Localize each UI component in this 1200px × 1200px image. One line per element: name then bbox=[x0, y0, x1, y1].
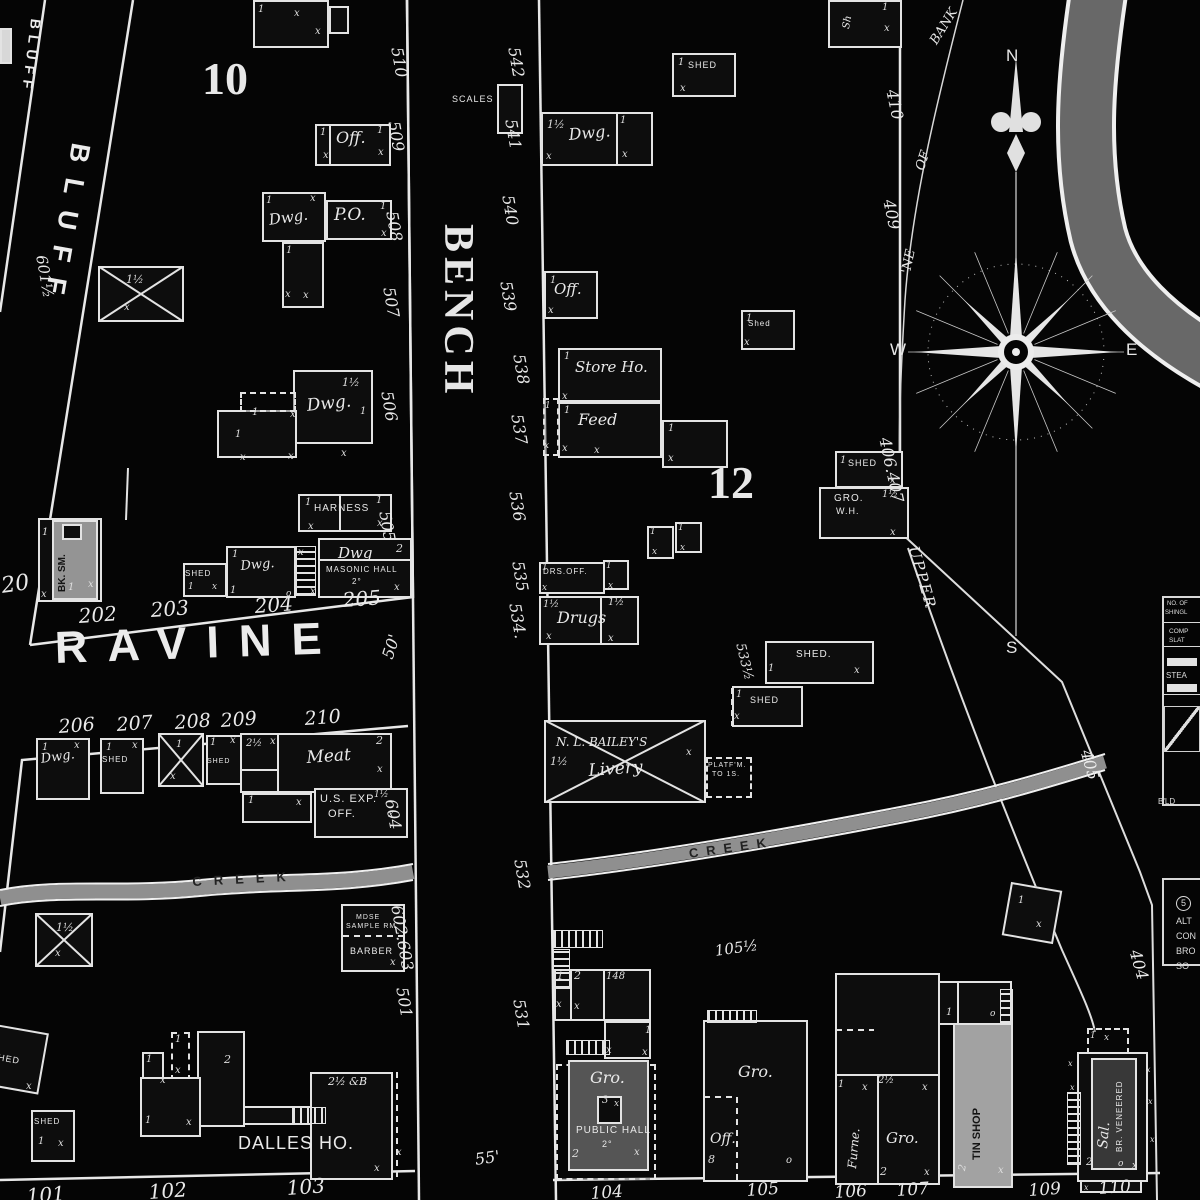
story-mark: 1 bbox=[42, 528, 48, 538]
story-mark: 1½ bbox=[56, 922, 74, 933]
story-mark: 1 bbox=[230, 586, 236, 596]
story-mark: x bbox=[734, 712, 740, 722]
story-mark: 1 bbox=[376, 496, 382, 506]
lot-410: 410 bbox=[883, 88, 905, 121]
story-mark: 2 bbox=[574, 970, 581, 981]
bldg-topcut-a2 bbox=[329, 6, 349, 34]
story-mark: 2 bbox=[572, 1148, 579, 1159]
legend-alt: ALT bbox=[1176, 916, 1192, 926]
lot-409: 409 bbox=[880, 198, 902, 231]
lot-405: 405 bbox=[1078, 748, 1102, 782]
story-mark: 1 bbox=[146, 1055, 152, 1065]
story-mark: x bbox=[170, 772, 176, 782]
story-mark: x bbox=[270, 737, 276, 747]
story-mark: x bbox=[634, 1148, 640, 1158]
bldg-platform-label2: TO 1S. bbox=[712, 771, 740, 778]
bldg-gro2-label: Gro. bbox=[738, 1064, 773, 1080]
story-mark: x bbox=[854, 666, 860, 676]
story-mark: x bbox=[562, 392, 568, 402]
story-mark: 2½ bbox=[878, 1076, 894, 1086]
story-mark: x bbox=[622, 150, 628, 160]
bank-line-bank: BANK bbox=[928, 6, 960, 47]
river-fill bbox=[1086, 0, 1200, 362]
bldg-sal-label: Sal. bbox=[1096, 1121, 1112, 1149]
bldg-sal-inner bbox=[1091, 1058, 1137, 1170]
story-mark: 2 bbox=[1086, 1158, 1092, 1168]
bldg-shed207-label: SHED bbox=[102, 756, 128, 764]
compass-south-label: S bbox=[1006, 638, 1017, 658]
bldg-shed-b-label: SHED bbox=[688, 61, 717, 70]
story-mark: 1 bbox=[678, 58, 684, 68]
sanborn-map: BLUFF BLUFF BENCH RAVINE UPPER CREEK CRE… bbox=[0, 0, 1200, 1200]
story-mark: 1½ bbox=[126, 274, 144, 285]
bldg-publichall-floor: 2° bbox=[602, 1140, 613, 1149]
story-mark: 1 bbox=[248, 796, 254, 806]
story-mark: x bbox=[686, 748, 692, 758]
lot-506: 506 bbox=[378, 390, 399, 423]
lot-531: 531 bbox=[510, 998, 531, 1031]
story-mark: 1 bbox=[68, 583, 74, 593]
compass-north-label: N bbox=[1006, 46, 1018, 66]
story-mark: x bbox=[186, 1118, 192, 1128]
legend-bro: BRO bbox=[1176, 946, 1196, 956]
story-mark: x bbox=[290, 410, 296, 420]
legend-comp: COMP bbox=[1169, 628, 1189, 635]
story-mark: x bbox=[608, 582, 613, 591]
story-mark: 2½ bbox=[246, 739, 262, 749]
story-mark: 1 bbox=[645, 1026, 651, 1036]
lot-102: 102 bbox=[148, 1179, 187, 1200]
bldg-office-label: Off. bbox=[336, 130, 366, 146]
story-mark: x bbox=[890, 476, 896, 486]
story-mark: x bbox=[608, 634, 614, 644]
legend-so: SO bbox=[1176, 961, 1189, 971]
bldg-shed-a-label: SHED bbox=[185, 570, 211, 578]
legend-swatch bbox=[1167, 684, 1197, 692]
bldg-bksm-label: BK. SM. bbox=[58, 554, 68, 592]
story-mark: 1 bbox=[678, 524, 684, 533]
story-mark: x bbox=[562, 444, 568, 454]
bldg-dalles-note: 2½ &B bbox=[328, 1076, 367, 1087]
story-mark: x bbox=[377, 519, 383, 529]
story-mark: 1 bbox=[746, 314, 752, 324]
story-mark: 1½ bbox=[342, 377, 360, 388]
bldg-dwg5-half: 1½ bbox=[547, 119, 565, 130]
legend-divider bbox=[1162, 694, 1200, 695]
bldg-barber-label: BARBER bbox=[350, 947, 393, 956]
bldg-mdse-label1: MDSE bbox=[356, 914, 380, 921]
story-mark: 1½ bbox=[543, 600, 559, 610]
bldg-livery-half: 1½ bbox=[550, 756, 568, 767]
story-mark: 1 bbox=[840, 456, 846, 466]
bldg-usexp-label: U.S. EXP. bbox=[320, 794, 377, 805]
legend-number-5: 5 bbox=[1176, 896, 1191, 911]
story-mark: 1 bbox=[557, 972, 563, 982]
story-mark: x bbox=[230, 736, 236, 746]
story-mark: 1 bbox=[176, 740, 182, 750]
story-mark: x bbox=[374, 1164, 380, 1174]
lot-205: 205 bbox=[342, 587, 381, 610]
story-mark: x bbox=[594, 446, 600, 456]
story-mark: 1 bbox=[1018, 896, 1024, 906]
story-mark: x bbox=[1036, 920, 1042, 930]
bldg-topcut-a bbox=[253, 0, 329, 48]
story-mark: 148 bbox=[606, 972, 625, 982]
story-mark: x bbox=[556, 1000, 562, 1010]
story-mark: 1½ bbox=[882, 490, 898, 500]
bldg-dalles-right bbox=[310, 1072, 393, 1180]
compass-east-label: E bbox=[1126, 340, 1137, 360]
story-mark: x bbox=[652, 548, 657, 557]
story-mark: x bbox=[55, 949, 61, 959]
legend-stea: STEA bbox=[1166, 671, 1187, 680]
story-mark: x bbox=[160, 1076, 166, 1086]
story-mark: 1 bbox=[668, 424, 674, 434]
bldg-dwg3-label: Dwg bbox=[338, 546, 372, 561]
story-mark: x bbox=[542, 584, 547, 593]
story-mark: x bbox=[212, 583, 217, 592]
bldg-gro3-label: Gro. bbox=[886, 1131, 919, 1146]
story-mark: 1 bbox=[946, 1008, 952, 1018]
story-mark: 1 bbox=[377, 126, 383, 136]
lot-532: 532 bbox=[511, 858, 532, 891]
bldg-furn-label: Furne. bbox=[846, 1128, 861, 1169]
lot-104: 104 bbox=[590, 1184, 624, 1200]
story-mark: x bbox=[1148, 1098, 1153, 1106]
bldg-off3-label: Off. bbox=[710, 1132, 736, 1146]
story-mark: x bbox=[341, 449, 347, 459]
story-mark: x bbox=[26, 1082, 32, 1092]
lot-507: 507 bbox=[380, 286, 401, 319]
bldg-livery-name: N. L. BAILEY'S bbox=[556, 736, 647, 748]
lot-109: 109 bbox=[1028, 1181, 1062, 1200]
street-label-bluff-small: BLUFF bbox=[19, 18, 44, 95]
lot-533half: 533½ bbox=[733, 642, 755, 681]
lot-539: 539 bbox=[497, 280, 518, 313]
bldg-tilted bbox=[1002, 882, 1063, 944]
story-mark: x bbox=[396, 1148, 402, 1158]
story-mark: x bbox=[546, 152, 552, 162]
story-mark: 1 bbox=[175, 1035, 181, 1045]
block-number-12: 12 bbox=[708, 456, 754, 509]
lot-207: 207 bbox=[116, 713, 154, 734]
lot-537: 537 bbox=[508, 413, 529, 446]
bldg-livery-label: Livery bbox=[588, 759, 643, 780]
bldg-po-label: P.O. bbox=[334, 207, 366, 224]
bldg-shed3-label: SHED bbox=[34, 1118, 60, 1126]
bldg-publichall-label: PUBLIC HALL bbox=[576, 1126, 651, 1136]
lot-534: 534. bbox=[506, 602, 528, 640]
story-mark: 1 bbox=[106, 743, 112, 753]
street-width-ravine: 50' bbox=[380, 632, 403, 660]
story-mark: 1 bbox=[188, 583, 194, 592]
story-mark: 3 bbox=[602, 1096, 608, 1106]
story-mark: x bbox=[744, 338, 750, 348]
story-mark: 1 bbox=[266, 196, 272, 206]
compass-west-label: W bbox=[890, 340, 906, 360]
stairs-icon bbox=[707, 1010, 757, 1023]
story-mark: x bbox=[288, 452, 294, 462]
bldg-dalles-label: DALLES HO. bbox=[238, 1134, 354, 1152]
lot-206: 206 bbox=[58, 715, 96, 736]
story-mark: 2 bbox=[880, 1166, 887, 1177]
lot-203: 203 bbox=[150, 597, 189, 620]
story-mark: o bbox=[786, 1156, 792, 1166]
legend-con: CON bbox=[1176, 931, 1196, 941]
story-mark: x bbox=[390, 958, 396, 968]
bldg-dwg2-upleft bbox=[240, 392, 296, 412]
stairs-icon bbox=[553, 949, 570, 989]
lot-210: 210 bbox=[304, 707, 342, 728]
story-mark: x bbox=[1150, 1136, 1155, 1144]
lot-20: 20 bbox=[0, 572, 31, 598]
story-mark: x bbox=[548, 306, 554, 316]
story-mark: x bbox=[1132, 1162, 1137, 1171]
stairs-icon bbox=[292, 1107, 326, 1124]
bank-line-ne: 'NE bbox=[900, 248, 918, 275]
lot-105: 105 bbox=[746, 1181, 780, 1200]
river bbox=[1086, 0, 1200, 362]
bldg-gro-wh-label2: W.H. bbox=[836, 507, 860, 516]
bldg-masonic-label: MASONIC HALL bbox=[326, 566, 398, 574]
bldg-drsoff-label: DRS.OFF. bbox=[543, 568, 587, 576]
story-mark: 1 bbox=[550, 276, 556, 286]
story-mark: x bbox=[394, 583, 400, 593]
stairs-icon bbox=[1067, 1092, 1081, 1165]
lot-110: 110 bbox=[1098, 1179, 1132, 1198]
street-label-upper: UPPER bbox=[905, 544, 940, 612]
story-mark: x bbox=[1104, 1034, 1109, 1043]
bldg-usexp-label2: OFF. bbox=[328, 809, 356, 820]
creek-label-mid: CREEK bbox=[688, 834, 775, 861]
lot-404: 404 bbox=[1127, 948, 1151, 982]
lot-105half: 105½ bbox=[714, 938, 759, 959]
story-mark: x bbox=[998, 1166, 1004, 1176]
story-mark: 1 bbox=[650, 528, 656, 537]
story-mark: x bbox=[308, 522, 314, 532]
lot-208: 208 bbox=[174, 711, 212, 732]
legend-bld: B'LD bbox=[1158, 797, 1175, 806]
story-mark: x bbox=[1068, 1060, 1073, 1068]
legend-slat: SLAT bbox=[1169, 637, 1185, 644]
story-mark: 1 bbox=[545, 402, 551, 411]
story-mark: x bbox=[606, 1046, 612, 1056]
bldg-sh-top bbox=[828, 0, 902, 48]
story-mark: 1 bbox=[360, 407, 366, 417]
bldg-dwg5-label: Dwg. bbox=[568, 123, 611, 143]
legend-shingle: SHINGL bbox=[1165, 610, 1187, 616]
story-mark: x bbox=[381, 229, 387, 239]
bldg-shed533 bbox=[765, 641, 874, 684]
story-mark: 1 bbox=[42, 743, 48, 753]
story-mark: 2 bbox=[224, 1054, 231, 1065]
lot-510: 510 bbox=[388, 46, 409, 79]
story-mark: 1 bbox=[736, 690, 742, 700]
bldg-gro-wh-label: GRO. bbox=[834, 494, 864, 504]
lot-542: 542 bbox=[505, 46, 526, 79]
story-mark: o bbox=[286, 590, 291, 599]
story-mark: x bbox=[175, 1066, 181, 1076]
story-mark: x bbox=[377, 765, 383, 775]
story-mark: x bbox=[890, 528, 896, 538]
lot-501: 501 bbox=[393, 986, 414, 1019]
story-mark: x bbox=[310, 194, 316, 204]
story-mark: 1 bbox=[252, 408, 258, 418]
story-mark: x bbox=[294, 9, 300, 19]
street-line-bench-w bbox=[407, 0, 419, 1200]
lot-101: 101 bbox=[26, 1183, 65, 1200]
story-mark: x bbox=[88, 580, 94, 590]
bank-line-of: OF bbox=[914, 149, 932, 172]
story-mark: 8 bbox=[708, 1154, 715, 1165]
story-mark: 1 bbox=[305, 498, 311, 508]
story-mark: x bbox=[668, 454, 674, 464]
lot-536: 536 bbox=[506, 490, 527, 523]
legend-no-of: NO. OF bbox=[1167, 601, 1188, 607]
story-mark: x bbox=[296, 798, 302, 808]
story-mark: x bbox=[315, 27, 321, 37]
creek-label-left: CREEK bbox=[192, 868, 298, 889]
story-mark: x bbox=[924, 1168, 930, 1178]
story-mark: o bbox=[990, 1010, 995, 1019]
upper-street-west bbox=[908, 548, 1095, 1032]
story-mark: x bbox=[323, 151, 329, 161]
frag-topleft bbox=[0, 28, 12, 64]
bldg-scales-label: SCALES bbox=[452, 95, 494, 104]
lot-535: 535 bbox=[509, 560, 530, 593]
lot-103: 103 bbox=[286, 1175, 325, 1198]
stairs-icon bbox=[566, 1040, 610, 1055]
bldg-bksm-box bbox=[62, 524, 82, 540]
story-mark: 2 bbox=[376, 735, 383, 746]
story-mark: 2 bbox=[396, 543, 403, 554]
story-mark: 1 bbox=[606, 562, 612, 571]
story-mark: x bbox=[74, 741, 80, 751]
story-mark: 1 bbox=[235, 430, 241, 440]
lot-509: 509 bbox=[385, 120, 406, 153]
bldg-tinshop-label: TIN SHOP bbox=[972, 1108, 983, 1160]
bldg-dwg2-label: Dwg. bbox=[306, 393, 352, 415]
stairs-icon bbox=[553, 930, 603, 948]
bldg-mdse-label2: SAMPLE RM bbox=[346, 923, 396, 930]
bldg-shed-e bbox=[732, 686, 803, 727]
bldg-meat-label: Meat bbox=[306, 747, 352, 767]
story-mark: x bbox=[544, 442, 549, 451]
story-mark: x bbox=[680, 544, 685, 553]
story-mark: 1 bbox=[210, 738, 216, 748]
story-mark: x bbox=[310, 587, 316, 597]
story-mark: x bbox=[680, 84, 686, 94]
story-mark: 1 bbox=[564, 406, 570, 416]
interior-wall bbox=[126, 468, 128, 520]
legend-divider bbox=[1162, 622, 1200, 623]
bldg-gro2 bbox=[703, 1020, 808, 1182]
compass-rose-icon bbox=[908, 58, 1124, 636]
bldg-shed533-label: SHED. bbox=[796, 650, 832, 660]
story-mark: o bbox=[1118, 1160, 1123, 1169]
story-mark: x bbox=[388, 810, 394, 820]
story-mark: 1½ bbox=[608, 598, 624, 608]
street-label-bench: BENCH bbox=[434, 224, 482, 398]
story-mark: 1 bbox=[1090, 1032, 1096, 1041]
lot-209: 209 bbox=[220, 709, 258, 730]
bldg-shed209-label: SHED bbox=[207, 758, 230, 765]
bldg-dalles-3 bbox=[197, 1031, 245, 1127]
lot-202: 202 bbox=[78, 603, 117, 626]
story-mark: 1 bbox=[542, 564, 548, 573]
story-mark: x bbox=[614, 1100, 619, 1109]
lot-541: 541 bbox=[502, 118, 523, 151]
story-mark: x bbox=[303, 291, 309, 301]
story-mark: x bbox=[124, 303, 130, 313]
story-mark: x bbox=[58, 1139, 64, 1149]
bldg-dalles-main bbox=[140, 1077, 201, 1137]
bldg-platform-label: PLATF'M. bbox=[708, 762, 746, 769]
lot-106: 106 bbox=[834, 1183, 868, 1200]
story-mark: x bbox=[285, 290, 291, 300]
story-mark: 1 bbox=[620, 116, 626, 126]
story-mark: 1 bbox=[258, 5, 264, 15]
story-mark: x bbox=[1070, 1084, 1075, 1092]
bldg-harness-label: HARNESS bbox=[314, 504, 369, 514]
story-mark: x bbox=[574, 1002, 580, 1012]
story-mark: x bbox=[862, 1083, 868, 1093]
bldg-shed-d-label: SHED bbox=[848, 459, 877, 468]
story-mark: x bbox=[546, 632, 552, 642]
bldg-sal-note: BR. VENEERED bbox=[1116, 1080, 1124, 1152]
legend-diagonal-swatch bbox=[1164, 706, 1200, 752]
story-mark: x bbox=[922, 1083, 928, 1093]
bldg-masonic-floor: 2° bbox=[352, 578, 362, 586]
lot-538: 538 bbox=[510, 353, 531, 386]
story-mark: x bbox=[378, 148, 384, 158]
story-mark: x bbox=[240, 453, 246, 463]
story-mark: 1 bbox=[232, 550, 238, 560]
story-mark: x bbox=[1084, 1184, 1089, 1192]
story-mark: x bbox=[642, 1048, 648, 1058]
bldg-usexp-half: 1½ bbox=[374, 791, 388, 800]
bldg-drugs-label: Drugs bbox=[557, 610, 606, 626]
legend-swatch bbox=[1167, 658, 1197, 666]
bldg-storeho-label: Store Ho. bbox=[575, 360, 648, 375]
lot-107: 107 bbox=[896, 1181, 930, 1200]
story-mark: 1 bbox=[380, 202, 386, 212]
bldg-grohall-label: Gro. bbox=[590, 1070, 625, 1086]
story-mark: x bbox=[1146, 1066, 1151, 1074]
story-mark: 1 bbox=[768, 664, 774, 674]
bldg-dwg4-label: Dwg. bbox=[240, 557, 275, 573]
bldg-shed-e-label: SHED bbox=[750, 696, 779, 705]
story-mark: 1 bbox=[882, 3, 888, 13]
block-number-10: 10 bbox=[202, 52, 248, 105]
story-mark: x bbox=[132, 741, 138, 751]
story-mark: x bbox=[41, 590, 47, 600]
story-mark: 1 bbox=[145, 1116, 151, 1126]
stairs-icon bbox=[1000, 989, 1013, 1024]
story-mark: 1 bbox=[38, 1137, 44, 1147]
bldg-office2-label: Off. bbox=[554, 282, 582, 297]
legend-divider bbox=[1162, 646, 1200, 647]
story-mark: x bbox=[884, 24, 890, 34]
story-mark: 1 bbox=[320, 128, 326, 138]
bldg-feed-label: Feed bbox=[578, 412, 617, 428]
story-mark: x bbox=[298, 548, 304, 558]
street-width-bench: 55' bbox=[474, 1149, 501, 1168]
story-mark: 1 bbox=[564, 352, 570, 362]
story-mark: 1 bbox=[286, 246, 292, 256]
lot-540: 540 bbox=[499, 194, 520, 227]
story-mark: 1 bbox=[838, 1080, 844, 1090]
